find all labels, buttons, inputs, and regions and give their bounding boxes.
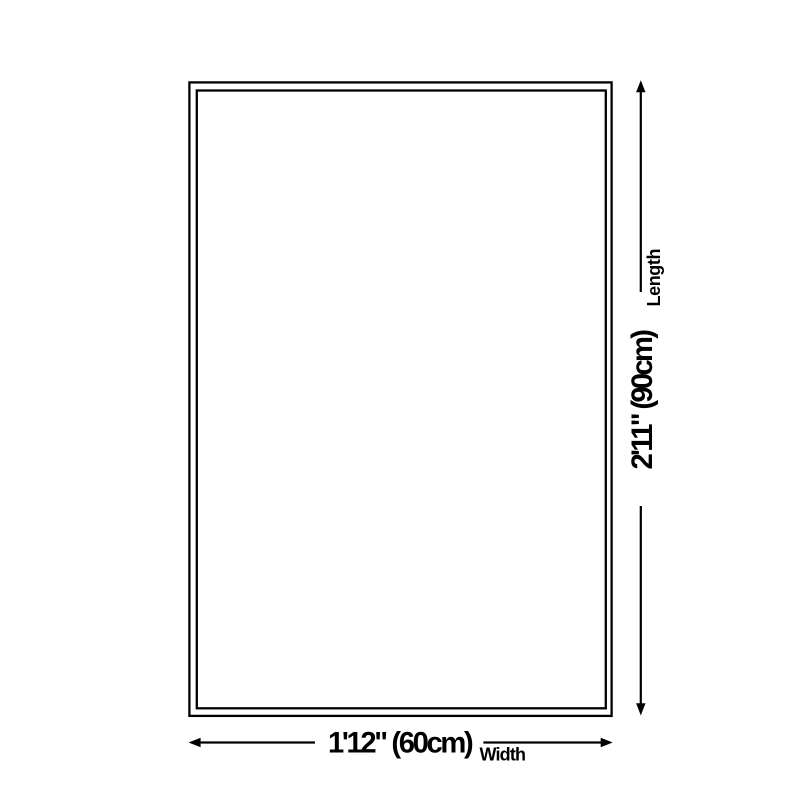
svg-text:Width: Width	[480, 745, 527, 765]
svg-text:Length: Length	[644, 249, 664, 307]
svg-text:2'11" (90cm): 2'11" (90cm)	[627, 329, 659, 470]
svg-text:1'12" (60cm): 1'12" (60cm)	[328, 727, 474, 759]
